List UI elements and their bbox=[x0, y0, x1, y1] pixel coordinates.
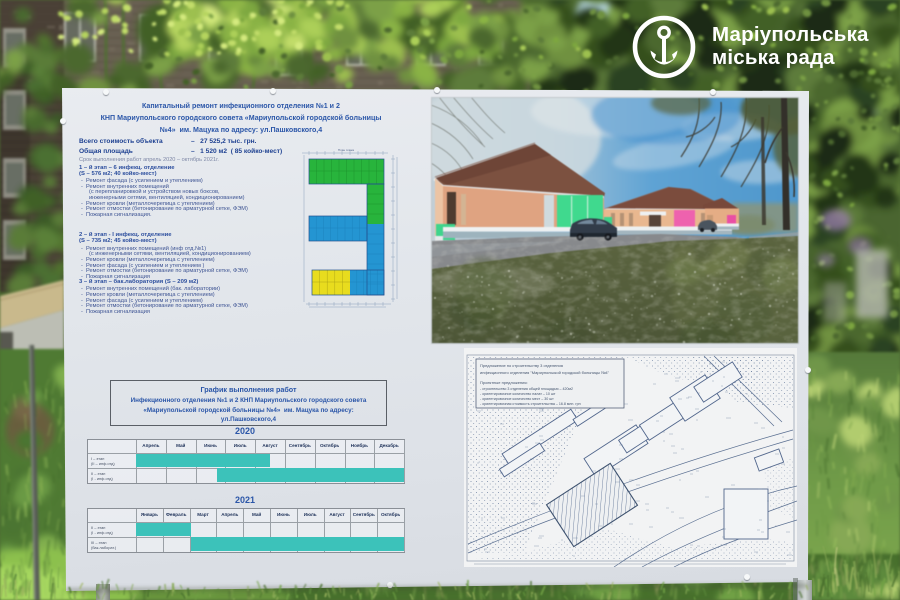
svg-text:Предложение по строительству 3: Предложение по строительству 3 отделения bbox=[480, 363, 563, 368]
svg-text:инфекционного отделения "Мариу: инфекционного отделения "Мариупольской г… bbox=[480, 370, 610, 375]
svg-text:- строительство 3 отделения об: - строительство 3 отделения общей площад… bbox=[480, 387, 573, 391]
svg-text:Проектные предложения:: Проектные предложения: bbox=[480, 380, 528, 385]
svg-text:- ориентировочное количество м: - ориентировочное количество мест – 30 ш… bbox=[480, 397, 554, 401]
svg-text:- ориентировочная стоимость ст: - ориентировочная стоимость строительств… bbox=[480, 402, 581, 406]
svg-text:- ориентировочное количество п: - ориентировочное количество палат – 10 … bbox=[480, 392, 556, 396]
svg-text:План этажа: План этажа bbox=[338, 148, 355, 152]
